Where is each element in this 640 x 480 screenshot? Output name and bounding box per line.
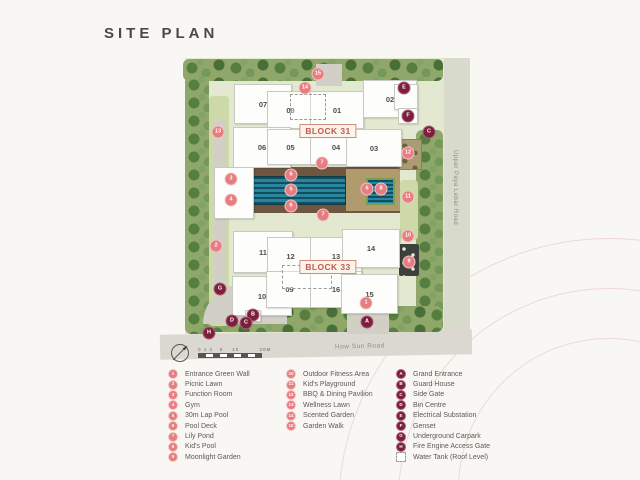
plan-marker-13: 13 bbox=[212, 126, 225, 139]
legend-item: Water Tank (Roof Level) bbox=[396, 452, 490, 462]
legend-item: AGrand Entrance bbox=[396, 369, 490, 379]
building-label: 10 bbox=[258, 292, 266, 301]
plan-marker-E: E bbox=[398, 82, 411, 95]
legend-marker-E: E bbox=[396, 411, 406, 421]
legend-label: Pool Deck bbox=[185, 423, 217, 430]
scale-labels: 0 1 2 5 10 20M bbox=[198, 347, 268, 352]
plan-marker-A: A bbox=[361, 316, 374, 329]
legend-item: HFire Engine Access Gate bbox=[396, 442, 490, 452]
legend-label: Water Tank (Roof Level) bbox=[413, 454, 488, 461]
legend-marker-7: 7 bbox=[168, 432, 178, 442]
scale-bar: 0 1 2 5 10 20M bbox=[198, 347, 268, 358]
road-label-upper-paya-lebar: Upper Paya Lebar Road bbox=[452, 150, 458, 260]
plan-marker-14: 14 bbox=[299, 82, 312, 95]
site-plan-page: SITE PLAN 070801020605040311121314100916… bbox=[0, 0, 640, 480]
legend-marker-F: F bbox=[396, 421, 406, 431]
legend-item: 3Function Room bbox=[168, 390, 250, 400]
building-label: 04 bbox=[332, 143, 340, 152]
legend-item: 4Gym bbox=[168, 400, 250, 410]
legend-label: Outdoor Fitness Area bbox=[303, 371, 369, 378]
legend-item: EElectrical Substation bbox=[396, 411, 490, 421]
legend-label: Scented Garden bbox=[303, 412, 354, 419]
plan-marker-C: C bbox=[240, 317, 253, 330]
legend-marker-6: 6 bbox=[168, 421, 178, 431]
legend-item: 14Scented Garden bbox=[286, 411, 373, 421]
legend-marker-C: C bbox=[396, 390, 406, 400]
plan-marker-1: 1 bbox=[360, 297, 373, 310]
legend-label: Function Room bbox=[185, 391, 232, 398]
legend-item: 6Pool Deck bbox=[168, 421, 250, 431]
legend-marker-1: 1 bbox=[168, 369, 178, 379]
legend-label: Genset bbox=[413, 423, 436, 430]
plan-marker-D: D bbox=[226, 315, 239, 328]
plan-marker-11: 11 bbox=[402, 191, 415, 204]
plan-marker-5: 5 bbox=[285, 184, 298, 197]
legend-label: Gym bbox=[185, 402, 200, 409]
legend-item: DBin Centre bbox=[396, 400, 490, 410]
trees-west bbox=[185, 76, 209, 334]
legend-item: 1Entrance Green Wall bbox=[168, 369, 250, 379]
legend-item: 11Kid's Playground bbox=[286, 379, 373, 389]
building-label: 14 bbox=[367, 244, 375, 253]
legend-marker-3: 3 bbox=[168, 390, 178, 400]
legend-item: BGuard House bbox=[396, 379, 490, 389]
legend-item: 9Moonlight Garden bbox=[168, 452, 250, 462]
building-label: 07 bbox=[259, 100, 267, 109]
legend-item: 13Wellness Lawn bbox=[286, 400, 373, 410]
road-label-how-sun: How Sun Road bbox=[335, 342, 385, 350]
legend-label: Electrical Substation bbox=[413, 412, 476, 419]
legend-marker-H: H bbox=[396, 442, 406, 452]
legend-label: 30m Lap Pool bbox=[185, 412, 228, 419]
plan-marker-9: 9 bbox=[403, 256, 416, 269]
legend-item: 530m Lap Pool bbox=[168, 411, 250, 421]
legend-marker-B: B bbox=[396, 380, 406, 390]
building-label: 05 bbox=[286, 143, 294, 152]
legend-label: Entrance Green Wall bbox=[185, 371, 250, 378]
plan-marker-4: 4 bbox=[225, 194, 238, 207]
legend-marker-13: 13 bbox=[286, 400, 296, 410]
legend-marker-8: 8 bbox=[168, 442, 178, 452]
legend-label: Bin Centre bbox=[413, 402, 446, 409]
legend-label: Fire Engine Access Gate bbox=[413, 443, 490, 450]
legend-label: Picnic Lawn bbox=[185, 381, 222, 388]
legend-marker-12: 12 bbox=[286, 390, 296, 400]
legend-item: 12BBQ & Dining Pavilion bbox=[286, 390, 373, 400]
plan-marker-7: 7 bbox=[317, 209, 330, 222]
water-tank-outline bbox=[290, 94, 326, 120]
legend-label: Lily Pond bbox=[185, 433, 214, 440]
plan-marker-10: 10 bbox=[402, 230, 415, 243]
plan-marker-F: F bbox=[402, 110, 415, 123]
legend-label: Moonlight Garden bbox=[185, 454, 241, 461]
scale-strip bbox=[198, 353, 262, 358]
building-label: 01 bbox=[333, 106, 341, 115]
legend-item: 10Outdoor Fitness Area bbox=[286, 369, 373, 379]
legend-item: CSide Gate bbox=[396, 390, 490, 400]
legend-marker-5: 5 bbox=[168, 411, 178, 421]
plan-marker-8: 8 bbox=[375, 183, 388, 196]
legend-label: Side Gate bbox=[413, 391, 444, 398]
plan-marker-6: 6 bbox=[361, 183, 374, 196]
legend-column-1: 1Entrance Green Wall2Picnic Lawn3Functio… bbox=[168, 369, 250, 463]
legend-item: 15Garden Walk bbox=[286, 421, 373, 431]
plan-marker-7: 7 bbox=[316, 157, 329, 170]
plan-marker-3: 3 bbox=[225, 173, 238, 186]
building-label: 12 bbox=[286, 252, 294, 261]
building-label: 06 bbox=[258, 143, 266, 152]
plan-marker-C: C bbox=[423, 126, 436, 139]
legend-label: BBQ & Dining Pavilion bbox=[303, 391, 373, 398]
legend-label: Kid's Pool bbox=[185, 443, 216, 450]
legend-label: Grand Entrance bbox=[413, 371, 462, 378]
legend-item: 8Kid's Pool bbox=[168, 442, 250, 452]
legend-marker-4: 4 bbox=[168, 400, 178, 410]
legend-marker-G: G bbox=[396, 432, 406, 442]
legend-label: Kid's Playground bbox=[303, 381, 355, 388]
legend-marker-10: 10 bbox=[286, 369, 296, 379]
plan-marker-15: 15 bbox=[312, 68, 325, 81]
legend-marker-2: 2 bbox=[168, 380, 178, 390]
plan-marker-12: 12 bbox=[402, 147, 415, 160]
north-arrow-icon bbox=[168, 341, 192, 370]
plan-marker-6: 6 bbox=[285, 169, 298, 182]
legend-item: 2Picnic Lawn bbox=[168, 379, 250, 389]
water-tank-icon bbox=[396, 452, 406, 462]
legend-label: Garden Walk bbox=[303, 423, 344, 430]
legend-label: Wellness Lawn bbox=[303, 402, 350, 409]
legend-item: FGenset bbox=[396, 421, 490, 431]
legend-label: Guard House bbox=[413, 381, 455, 388]
legend-marker-11: 11 bbox=[286, 380, 296, 390]
legend-marker-9: 9 bbox=[168, 452, 178, 462]
legend-item: GUnderground Carpark bbox=[396, 431, 490, 441]
building-label: 16 bbox=[332, 285, 340, 294]
building-label: 03 bbox=[370, 144, 378, 153]
legend-marker-D: D bbox=[396, 400, 406, 410]
legend-marker-A: A bbox=[396, 369, 406, 379]
legend-marker-15: 15 bbox=[286, 421, 296, 431]
legend-column-3: AGrand EntranceBGuard HouseCSide GateDBi… bbox=[396, 369, 490, 463]
legend-item: 7Lily Pond bbox=[168, 431, 250, 441]
plan-marker-G: G bbox=[214, 283, 227, 296]
block-name-label: BLOCK 33 bbox=[299, 260, 356, 274]
plan-marker-H: H bbox=[203, 327, 216, 340]
plan-marker-6: 6 bbox=[285, 200, 298, 213]
building-label: 02 bbox=[386, 95, 394, 104]
block-name-label: BLOCK 31 bbox=[299, 124, 356, 138]
legend-column-2: 10Outdoor Fitness Area11Kid's Playground… bbox=[286, 369, 373, 431]
legend-label: Underground Carpark bbox=[413, 433, 481, 440]
legend-marker-14: 14 bbox=[286, 411, 296, 421]
plan-marker-2: 2 bbox=[210, 240, 223, 253]
building-label: 11 bbox=[259, 248, 267, 257]
